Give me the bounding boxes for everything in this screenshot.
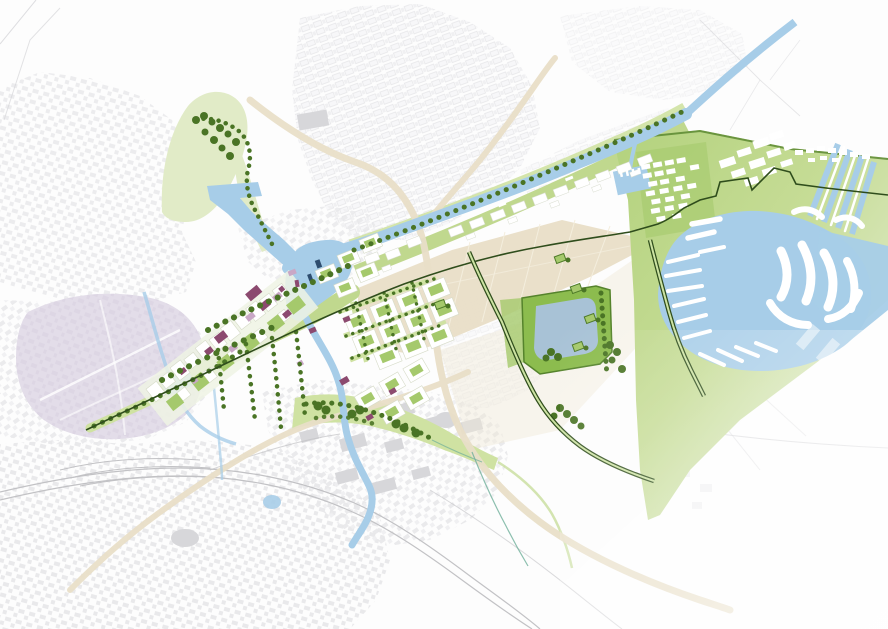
- masterplan-canvas: [0, 0, 888, 629]
- pond: [263, 495, 281, 509]
- fade-overlay-southeast: [560, 330, 888, 629]
- masterplan-map: [0, 0, 888, 629]
